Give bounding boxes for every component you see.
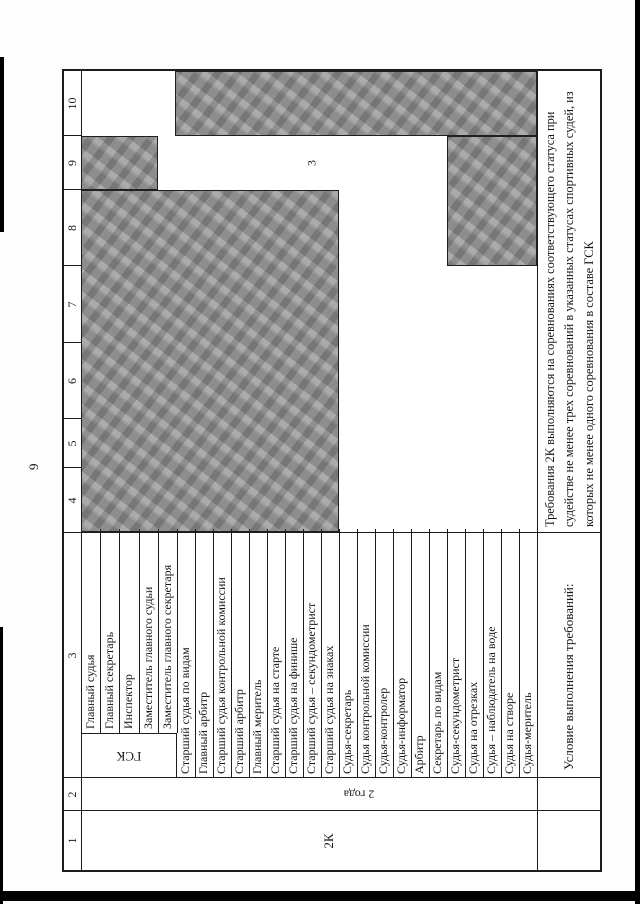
shaded-region-col9-officials	[81, 136, 158, 190]
judge-title-cell: Судья-информатор	[393, 529, 412, 778]
col-header-1: 1	[64, 810, 81, 870]
rotated-page-content: 9 1 2 3 4 5 6 7 8 9 10 Г	[0, 0, 640, 904]
gsk-label: ГСК	[117, 748, 142, 764]
scan-edge-bottom	[0, 891, 640, 901]
judge-title-cell: Старший судья – секундометрист	[303, 529, 322, 778]
judge-title-cell: Главный арбитр	[195, 529, 214, 778]
scan-edge-left-bottom	[0, 627, 3, 904]
col-header-2: 2	[64, 777, 81, 811]
judge-title-cell: Старший судья на старте	[267, 529, 286, 778]
col-header-4: 4	[64, 467, 81, 533]
judge-title-cell: Судья – наблюдатель на воде	[483, 529, 502, 778]
col-header-8: 8	[64, 189, 81, 266]
scanned-document-page: 9 1 2 3 4 5 6 7 8 9 10 Г	[0, 0, 640, 904]
gsk-group-cell: ГСК	[81, 733, 177, 778]
col1-col2-divider	[64, 810, 600, 811]
judge-title-cell: Судья-секундометрист	[447, 529, 466, 778]
judge-title-cell: Судья контрольной комиссии	[357, 529, 376, 778]
col-header-10: 10	[64, 71, 81, 136]
judge-title-cell: Судья-секретарь	[339, 529, 358, 778]
scan-edge-left-top	[0, 57, 4, 232]
judge-title-cell: Арбитр	[411, 529, 430, 778]
shaded-region-col10-judges	[175, 71, 537, 136]
judge-title-cell: Судья-меритель	[519, 529, 538, 778]
col-header-7: 7	[64, 265, 81, 343]
shaded-region-cols4-8	[81, 190, 339, 532]
col-header-6: 6	[64, 342, 81, 419]
judge-title-cell: Старший судья по видам	[177, 529, 196, 778]
scan-edge-right	[635, 0, 640, 904]
official-title-cell: Инспектор	[119, 529, 139, 733]
judge-title-cell: Секретарь по видам	[429, 529, 448, 778]
page-number: 9	[26, 464, 42, 471]
judge-title-cell: Судья на створе	[501, 529, 520, 778]
judge-title-cell: Старший судья контрольной комиссии	[213, 529, 232, 778]
official-title-cell: Главный судья	[81, 529, 101, 733]
col-header-9: 9	[64, 135, 81, 190]
official-title-cell: Заместитель главного судьи	[139, 529, 159, 733]
category-cell: 2К	[321, 833, 337, 848]
col-header-3: 3	[64, 532, 81, 778]
official-title-cell: Заместитель главного секретаря	[158, 529, 178, 733]
judge-title-cell: Судья-контролер	[375, 529, 394, 778]
official-title-cell: Главный секретарь	[100, 529, 120, 733]
col-header-5: 5	[64, 418, 81, 468]
condition-text-cell: Требования 2К выполняются на соревновани…	[541, 75, 599, 527]
matrix-value-cell: 3	[305, 160, 320, 166]
requirements-table: 1 2 3 4 5 6 7 8 9 10 ГСК Главный судьяГл…	[62, 69, 602, 872]
judge-title-cell: Старший судья на финише	[285, 529, 304, 778]
judge-title-cell: Судья на отрезках	[465, 529, 484, 778]
period-cell: 2 года	[344, 787, 375, 802]
judge-title-cell: Главный меритель	[249, 529, 268, 778]
condition-label-cell: Условие выполнения требований:	[537, 533, 600, 770]
shaded-region-cols8-9-lastrows	[447, 136, 537, 266]
judge-title-cell: Старший судья на знаках	[321, 529, 340, 778]
judge-title-cell: Старший арбитр	[231, 529, 250, 778]
